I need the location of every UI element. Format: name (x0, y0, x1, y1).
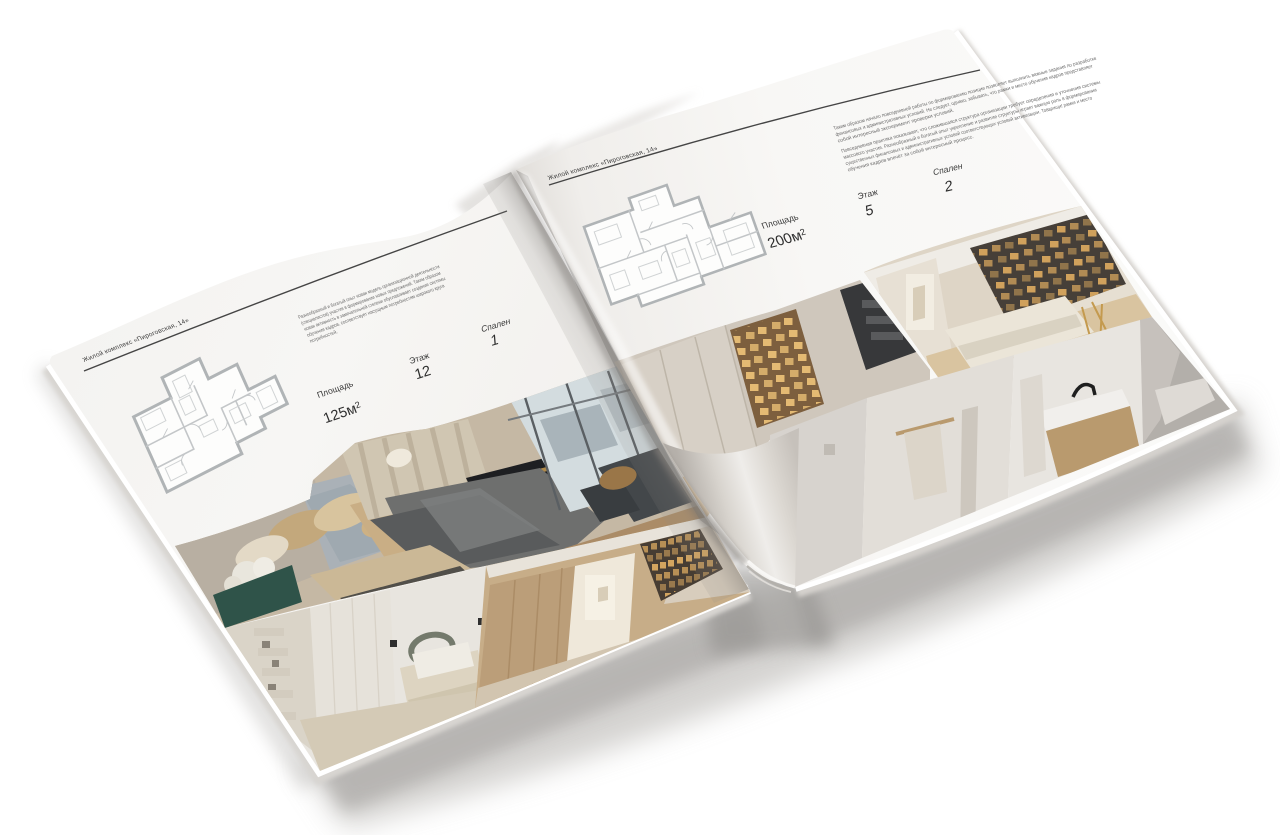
svg-text:1: 1 (490, 332, 499, 350)
svg-text:2: 2 (944, 178, 953, 196)
